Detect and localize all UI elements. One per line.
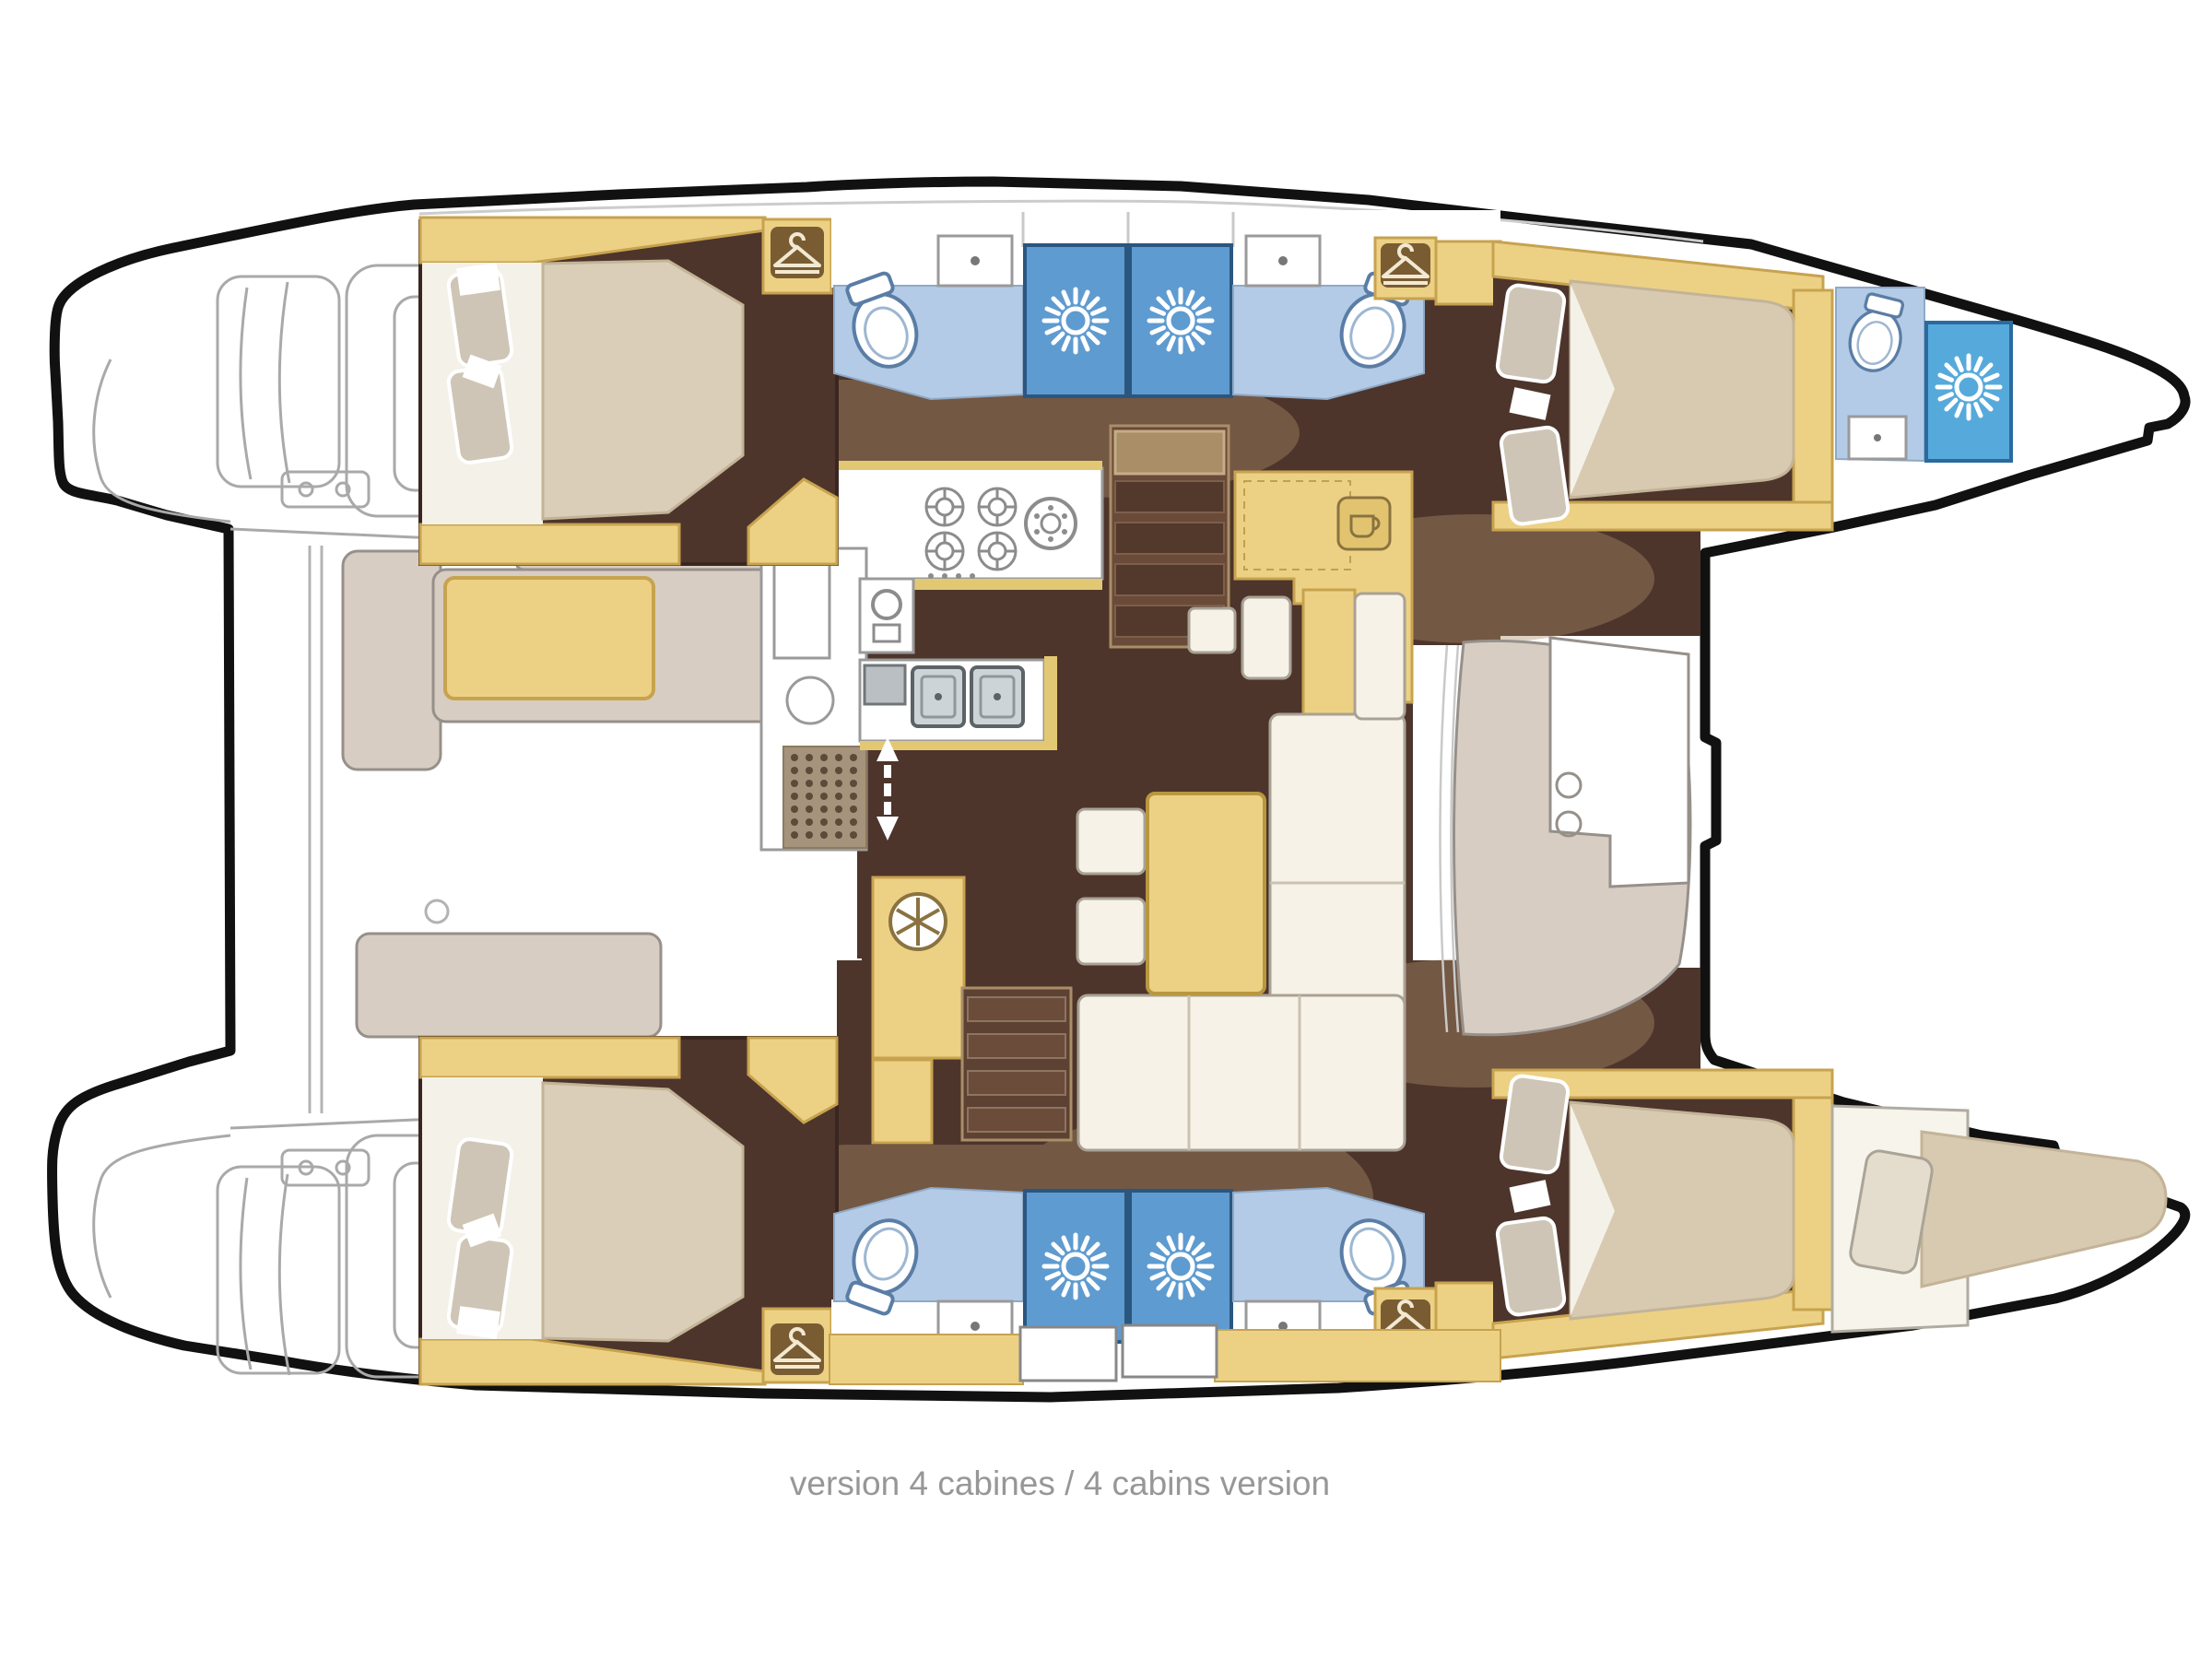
svg-text:version 4 cabines / 4 cabins v: version 4 cabines / 4 cabins version [790,1464,1330,1502]
